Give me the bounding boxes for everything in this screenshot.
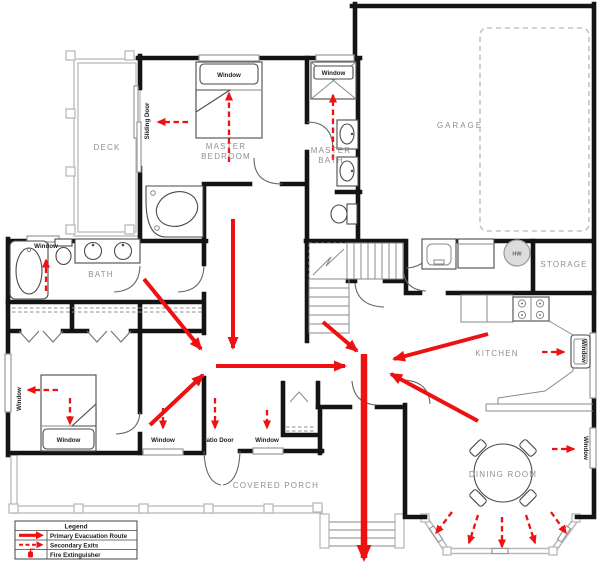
washer — [422, 239, 456, 269]
primary-route-arrow — [144, 279, 201, 349]
room-label-master-bedroom: BEDROOM — [201, 152, 251, 161]
primary-route-arrow — [394, 334, 488, 359]
window-label: Window — [57, 437, 81, 444]
water-heater-label: HW — [512, 252, 522, 258]
window-label: Window — [16, 387, 23, 411]
primary-route-arrow — [150, 375, 203, 425]
room-label-bath: BATH — [88, 270, 114, 279]
evacuation-floor-plan: DECK MASTER BEDROOM MASTER BATH GARAGE B… — [0, 0, 610, 581]
patio-door-label: Patio Door — [202, 437, 234, 444]
room-label-deck: DECK — [93, 143, 120, 152]
secondary-exit-arrow — [436, 512, 452, 533]
window-label: Window — [151, 437, 175, 444]
window-living-bottom — [253, 448, 283, 454]
window-kitchen-right — [590, 333, 596, 398]
stairs-direction-line — [313, 249, 344, 275]
secondary-exit-arrow — [469, 515, 478, 543]
stove — [513, 297, 549, 321]
room-label-storage: STORAGE — [540, 260, 587, 269]
window-label: Window — [322, 70, 346, 77]
master-bath-toilet — [331, 204, 357, 224]
room-label-master-bath: BATH — [318, 156, 344, 165]
window-hall-bottom — [143, 449, 183, 455]
room-label-master-bath: MASTER — [311, 146, 352, 155]
window-master-bedroom — [199, 55, 259, 61]
dryer — [458, 239, 494, 268]
legend: Legend Primary Evacuation Route Secondar… — [15, 521, 137, 559]
secondary-exit-arrow — [526, 515, 535, 543]
room-label-kitchen: KITCHEN — [475, 349, 519, 358]
coat-closet — [286, 392, 316, 431]
window-label: Window — [582, 436, 589, 460]
sliding-door-label: Sliding Door — [144, 102, 151, 139]
room-label-garage: GARAGE — [437, 121, 483, 130]
shower — [311, 62, 356, 99]
bath-vanity — [75, 239, 140, 263]
window-label: Window — [580, 339, 587, 363]
window-dining-right — [590, 428, 596, 468]
window-master-bath — [316, 55, 354, 61]
garage-car-bay — [480, 28, 589, 231]
corner-tub — [146, 186, 203, 237]
room-label-master-bedroom: MASTER — [206, 142, 247, 151]
floorplan-svg: DECK MASTER BEDROOM MASTER BATH GARAGE B… — [0, 0, 610, 581]
legend-item-label: Fire Extinguisher — [50, 552, 101, 559]
window-label: Window — [217, 72, 241, 79]
window-label: Window — [255, 437, 279, 444]
window-label: Window — [34, 243, 58, 250]
legend-item-label: Primary Evacuation Route — [50, 533, 128, 540]
window-bedroom-left — [5, 354, 11, 412]
legend-title: Legend — [64, 523, 87, 530]
secondary-exit-arrow — [551, 512, 566, 533]
room-label-covered-porch: COVERED PORCH — [233, 481, 319, 490]
room-label-dining-room: DINING ROOM — [469, 470, 537, 479]
legend-item-label: Secondary Exits — [50, 542, 99, 549]
primary-route-arrow — [323, 322, 357, 351]
sliding-door-panel — [137, 122, 141, 172]
